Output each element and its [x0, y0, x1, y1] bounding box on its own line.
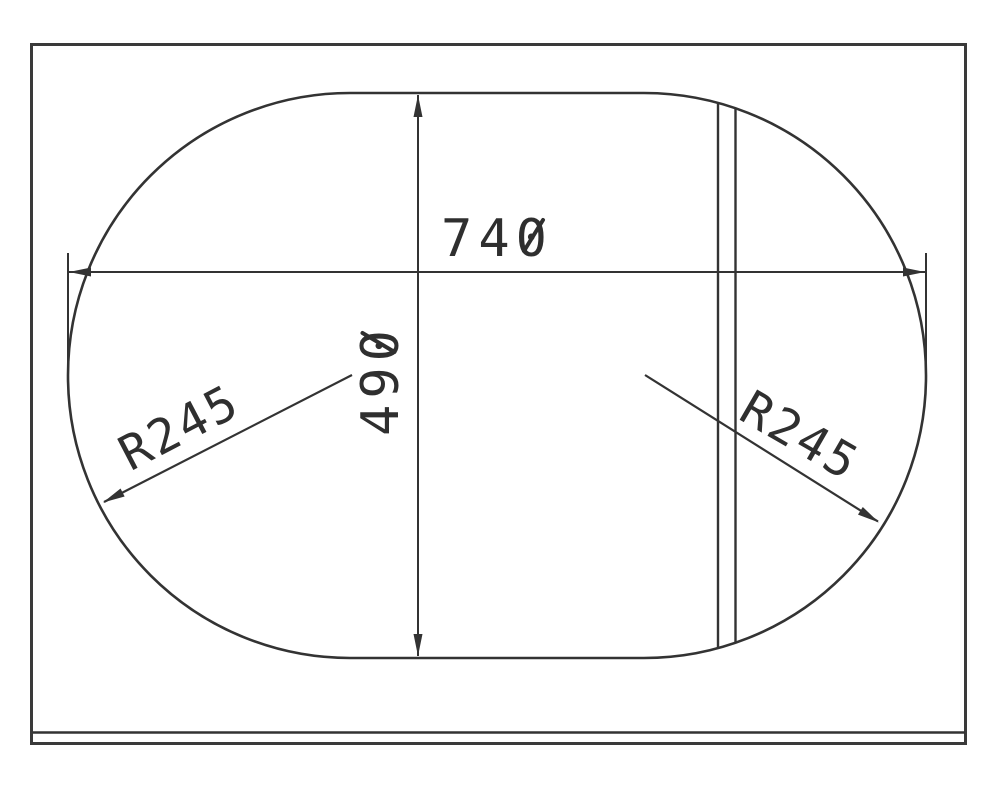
drawing-border	[32, 45, 966, 744]
arrowhead-up-icon	[414, 95, 423, 117]
tabletop-dimension-drawing: 740 490 R245 R245	[0, 0, 1000, 797]
tabletop-outline	[68, 93, 926, 658]
left-radius-label: R245	[110, 374, 249, 483]
height-dimension-label: 490	[351, 324, 411, 436]
arrowhead-down-icon	[414, 634, 423, 656]
arrowhead-right-icon	[903, 268, 925, 277]
left-radius-arrowhead-icon	[101, 488, 125, 506]
right-radius-label: R245	[731, 380, 869, 492]
right-radius-arrowhead-icon	[858, 507, 881, 526]
arrowhead-left-icon	[69, 268, 91, 277]
technical-drawing-canvas: 740 490 R245 R245	[0, 0, 1000, 797]
width-dimension-label: 740	[441, 209, 553, 269]
